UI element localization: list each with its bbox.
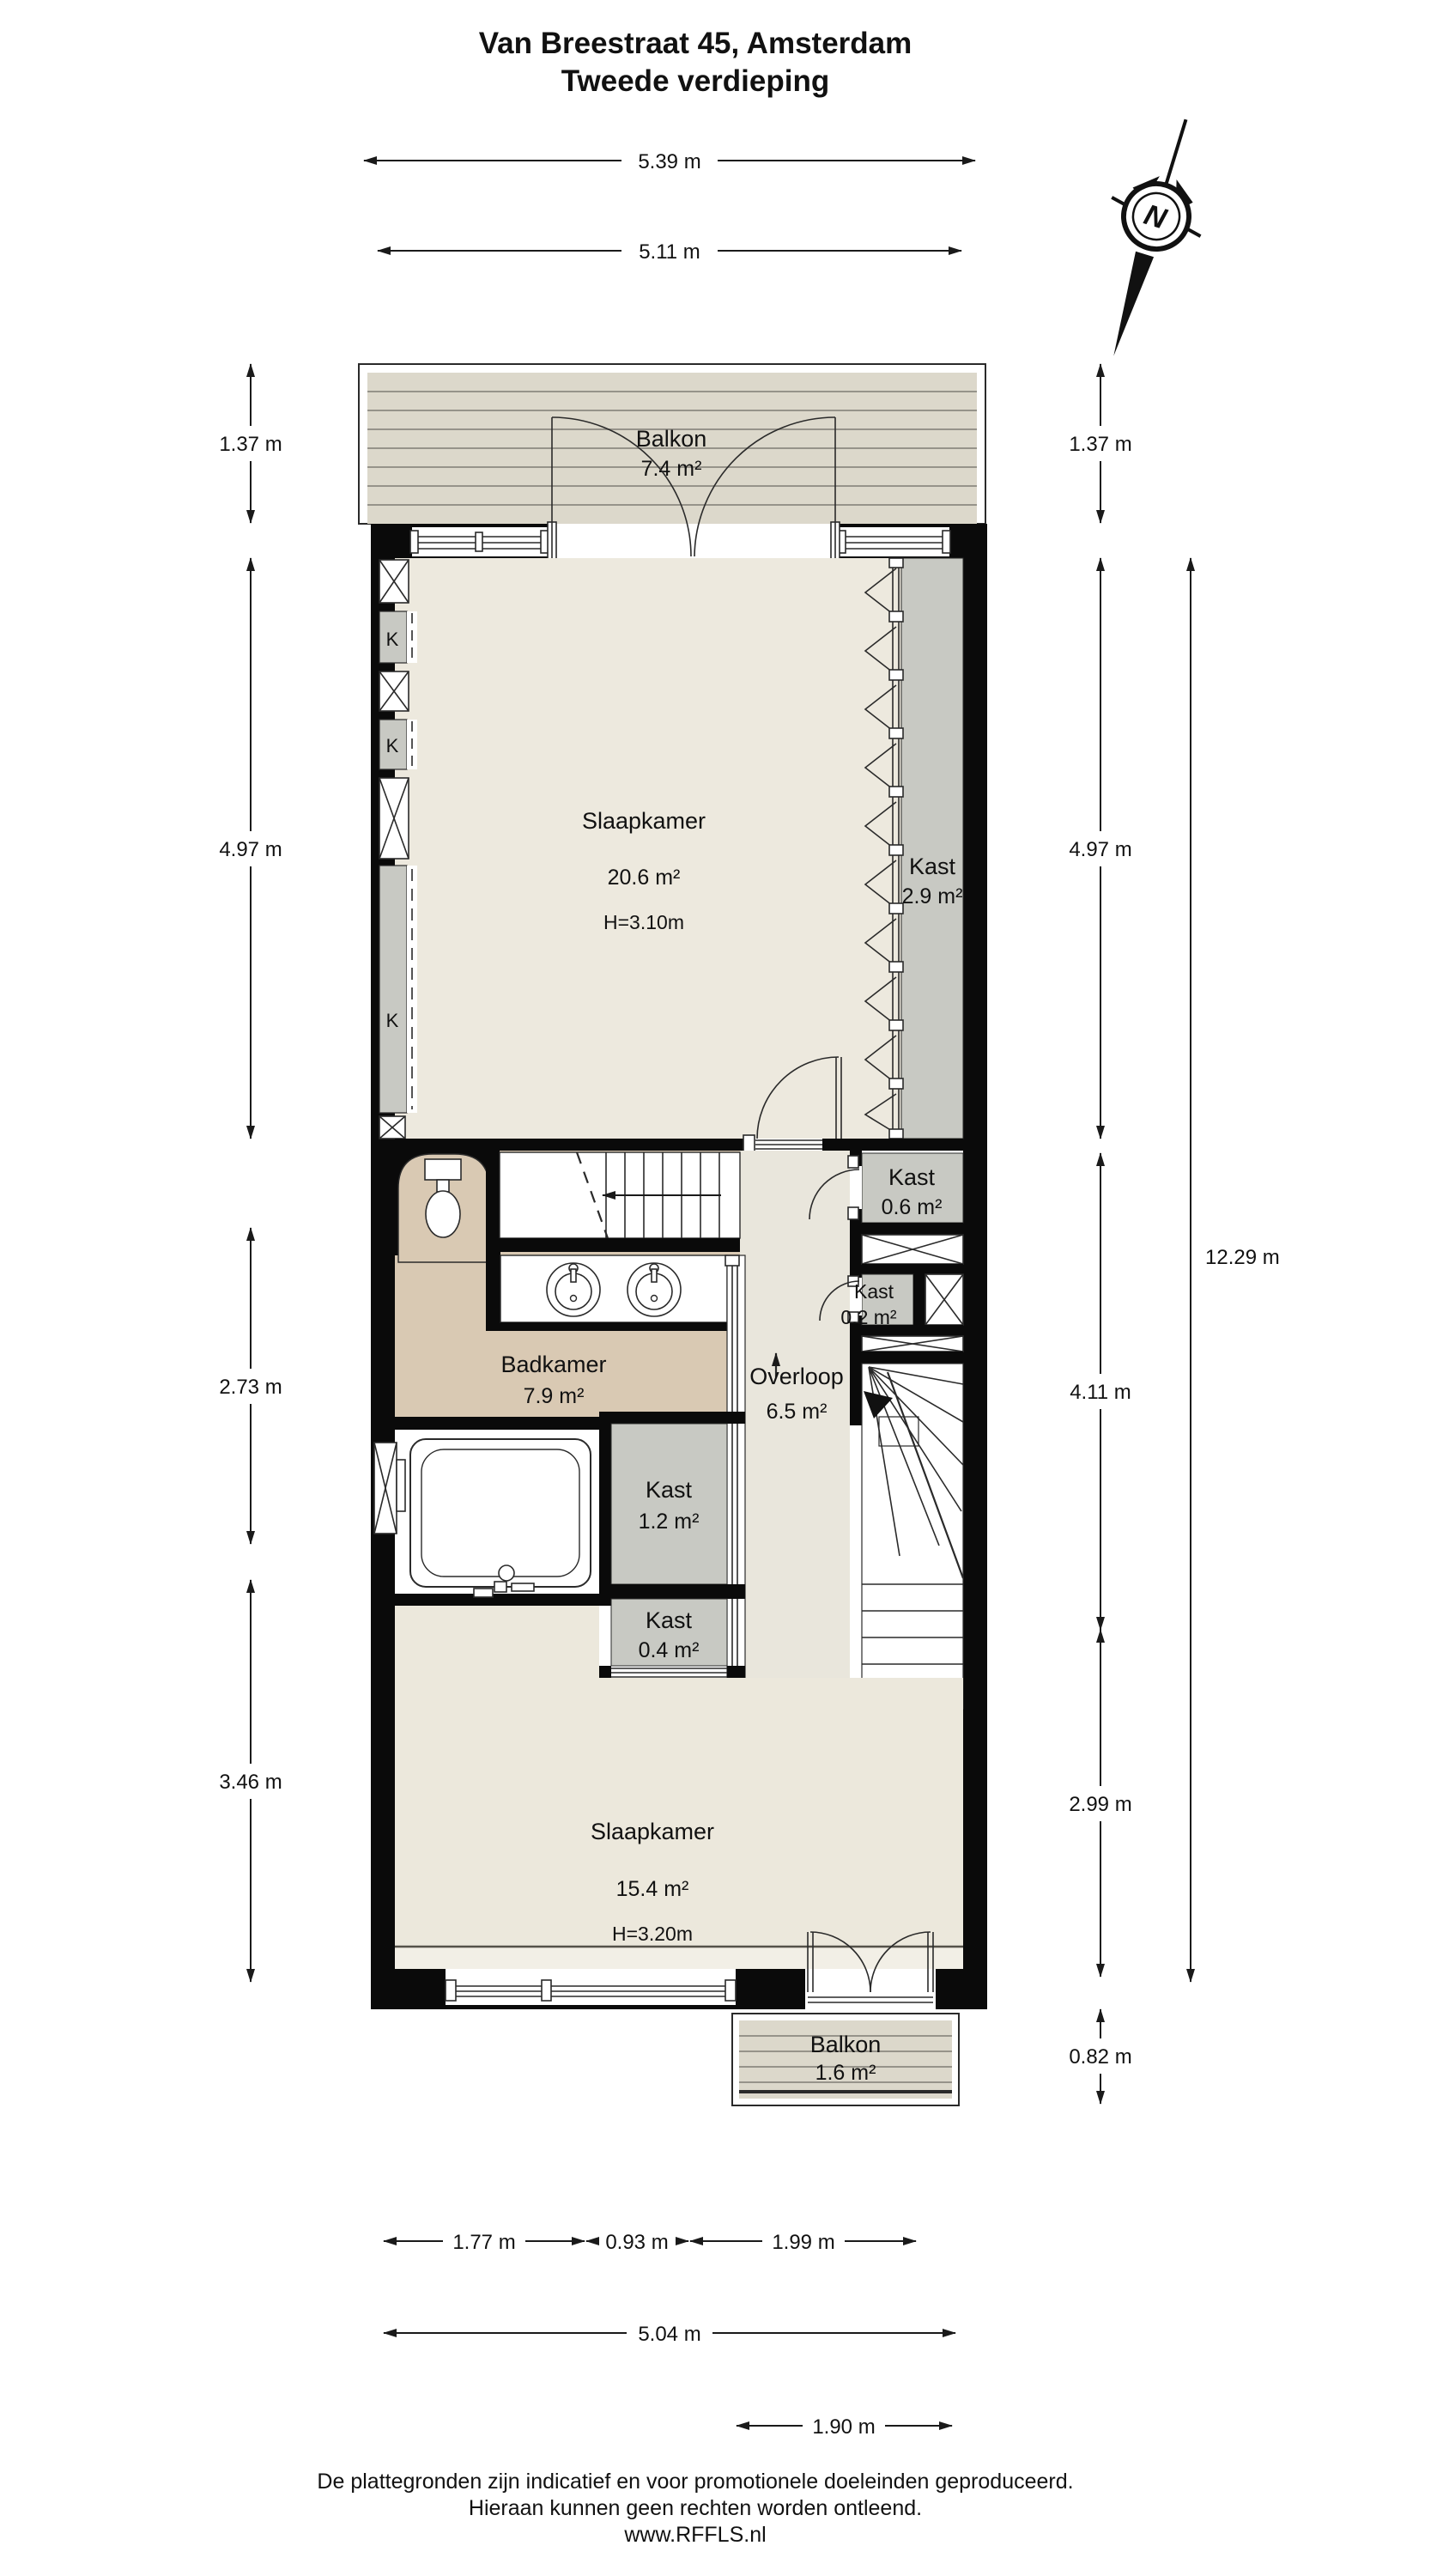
floorplan-page: Van Breestraat 45, Amsterdam Tweede verd…	[0, 0, 1449, 2576]
title-line1: Van Breestraat 45, Amsterdam	[479, 27, 912, 60]
toilet-tank	[425, 1159, 461, 1180]
footer-website: www.RFFLS.nl	[623, 2523, 766, 2547]
toilet-niche	[395, 1151, 500, 1262]
overloop-name: Overloop	[749, 1364, 844, 1389]
sliding-door	[725, 1255, 745, 1709]
slaapkamer1-area: 20.6 m²	[608, 866, 681, 890]
dim-bottom-2: 0.93 m	[605, 2231, 668, 2254]
slaapkamer1-name: Slaapkamer	[582, 808, 706, 834]
dim-right-4: 2.99 m	[1069, 1793, 1131, 1816]
kast04-area: 0.4 m²	[639, 1638, 700, 1662]
badkamer-name: Badkamer	[500, 1352, 606, 1377]
room-overloop: Overloop 6.5 m²	[740, 1151, 850, 1721]
kast29-name: Kast	[909, 854, 956, 879]
kast04-name: Kast	[646, 1607, 693, 1633]
closet-k3-label: K	[386, 1010, 399, 1031]
dim-right-5: 0.82 m	[1069, 2045, 1131, 2069]
staircase-up	[486, 1149, 740, 1252]
staircase-down	[862, 1364, 963, 1709]
toilet-bowl	[426, 1191, 460, 1237]
dim-top-inner: 5.11 m	[639, 240, 700, 264]
footer-disclaimer: De plattegronden zijn indicatief en voor…	[317, 2470, 1073, 2547]
dim-right-2: 4.97 m	[1069, 838, 1131, 861]
kast12-name: Kast	[646, 1477, 693, 1503]
dim-bottom-total: 5.04 m	[638, 2323, 700, 2346]
room-slaapkamer1: Slaapkamer 20.6 m² H=3.10m	[395, 558, 963, 1139]
badkamer-area: 7.9 m²	[524, 1384, 585, 1408]
balcony-top: Balkon 7.4 m²	[359, 364, 985, 524]
dim-left-3: 2.73 m	[219, 1376, 282, 1399]
kast02-name: Kast	[854, 1280, 894, 1303]
kast29-area: 2.9 m²	[902, 884, 963, 908]
kast06-name: Kast	[888, 1164, 936, 1190]
balcony-bottom-area: 1.6 m²	[815, 2061, 876, 2085]
dim-left-4: 3.46 m	[219, 1771, 282, 1794]
dim-left-2: 4.97 m	[219, 838, 282, 861]
dim-right-1: 1.37 m	[1069, 433, 1131, 456]
floorplan-canvas: Van Breestraat 45, Amsterdam Tweede verd…	[0, 0, 1449, 2576]
closet-k2-label: K	[386, 735, 399, 756]
footer-line1: De plattegronden zijn indicatief en voor…	[317, 2470, 1073, 2494]
balcony-top-area: 7.4 m²	[641, 457, 702, 481]
slaapkamer2-ceiling: H=3.20m	[612, 1923, 693, 1945]
slaapkamer2-area: 15.4 m²	[616, 1877, 689, 1901]
overloop-area: 6.5 m²	[767, 1400, 828, 1424]
balcony-bottom-name: Balkon	[810, 2032, 882, 2057]
footer-line2: Hieraan kunnen geen rechten worden ontle…	[469, 2496, 922, 2520]
dim-bottom-3: 1.99 m	[772, 2231, 834, 2254]
dim-bottom-1: 1.77 m	[452, 2231, 515, 2254]
dim-right-3: 4.11 m	[1070, 1381, 1131, 1404]
bathroom-vanity	[486, 1252, 727, 1331]
dim-balcony-width: 1.90 m	[812, 2415, 875, 2439]
kast12-area: 1.2 m²	[639, 1510, 700, 1534]
slaapkamer2-name: Slaapkamer	[591, 1819, 714, 1844]
page-title: Van Breestraat 45, Amsterdam Tweede verd…	[479, 27, 912, 98]
balcony-top-name: Balkon	[636, 426, 707, 452]
compass-north-icon: N	[1068, 106, 1232, 370]
closet-k1-label: K	[386, 629, 399, 650]
bathtub-faucet	[499, 1565, 514, 1581]
dim-right-total: 12.29 m	[1205, 1246, 1280, 1269]
dim-left-1: 1.37 m	[219, 433, 282, 456]
slaapkamer1-ceiling: H=3.10m	[603, 911, 684, 933]
balcony-bottom: Balkon 1.6 m²	[732, 2014, 959, 2105]
kast06-area: 0.6 m²	[882, 1195, 943, 1219]
dim-top-outer: 5.39 m	[638, 150, 700, 173]
title-line2: Tweede verdieping	[561, 64, 830, 98]
room-kast12: Kast 1.2 m²	[599, 1424, 745, 1599]
